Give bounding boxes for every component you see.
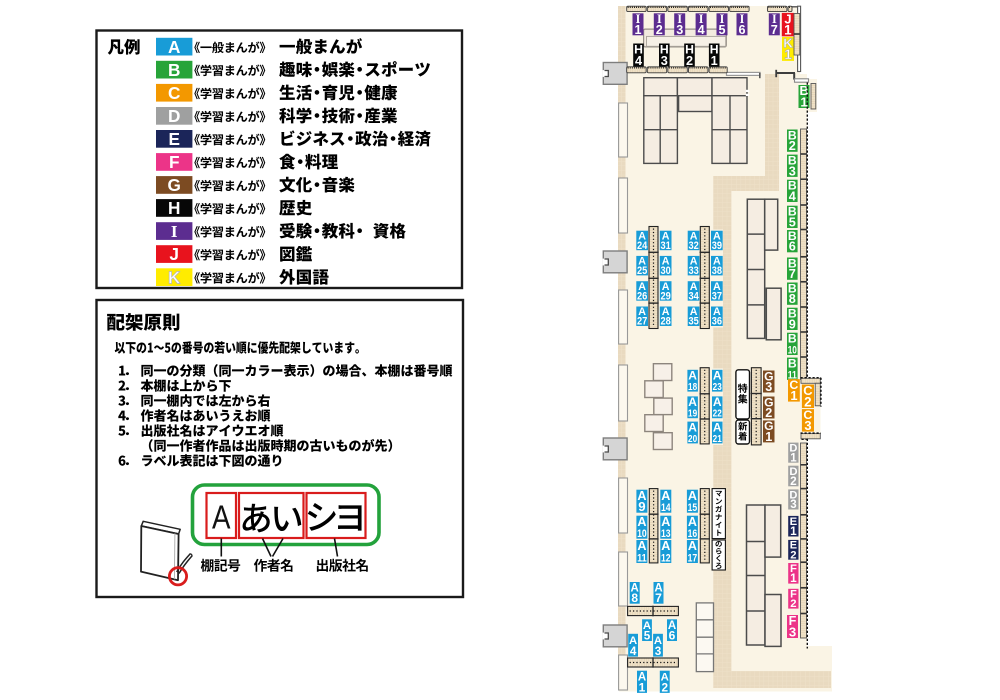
svg-text:27: 27 [637, 316, 647, 328]
svg-text:32: 32 [688, 240, 698, 252]
svg-text:7: 7 [655, 591, 662, 605]
svg-text:J: J [169, 244, 179, 264]
svg-text:19: 19 [688, 408, 697, 420]
svg-text:3: 3 [765, 380, 772, 394]
svg-text:26: 26 [637, 290, 647, 302]
svg-text:1: 1 [711, 54, 718, 68]
svg-text:6: 6 [789, 240, 796, 254]
svg-text:2: 2 [686, 54, 693, 68]
svg-text:9: 9 [789, 317, 796, 331]
svg-text:G: G [168, 175, 181, 195]
svg-text:4: 4 [789, 189, 796, 203]
svg-text:15: 15 [688, 502, 698, 514]
svg-text:3: 3 [655, 645, 662, 658]
svg-text:6: 6 [738, 23, 745, 37]
svg-text:1: 1 [790, 388, 797, 403]
svg-text:F: F [169, 152, 180, 172]
svg-text:3: 3 [804, 418, 811, 433]
svg-text:4: 4 [698, 23, 705, 37]
svg-text:H: H [168, 198, 180, 218]
svg-text:3: 3 [661, 54, 668, 68]
svg-text:2: 2 [662, 680, 669, 694]
svg-text:A: A [688, 489, 697, 503]
svg-text:1: 1 [784, 47, 792, 62]
svg-text:1: 1 [790, 571, 797, 585]
svg-text:6: 6 [669, 629, 676, 643]
svg-text:C: C [168, 83, 180, 103]
svg-text:1: 1 [634, 23, 641, 37]
svg-text:2: 2 [790, 549, 796, 561]
svg-text:18: 18 [688, 381, 697, 393]
svg-text:3: 3 [789, 164, 796, 178]
svg-text:35: 35 [688, 316, 698, 328]
svg-text:1: 1 [800, 94, 807, 109]
svg-text:22: 22 [713, 408, 722, 420]
svg-text:3: 3 [790, 499, 796, 511]
svg-text:2: 2 [789, 139, 796, 153]
svg-text:2: 2 [790, 474, 797, 488]
svg-text:9: 9 [638, 499, 645, 514]
svg-text:2: 2 [656, 23, 663, 37]
svg-text:A: A [661, 539, 670, 553]
svg-text:11: 11 [637, 552, 647, 564]
svg-text:3: 3 [676, 23, 683, 37]
svg-text:A: A [661, 489, 670, 503]
svg-text:7: 7 [771, 23, 778, 37]
svg-text:A: A [688, 515, 697, 529]
svg-text:A: A [212, 499, 231, 536]
svg-text:1: 1 [790, 452, 797, 464]
svg-text:37: 37 [712, 290, 722, 302]
svg-text:D: D [168, 106, 180, 126]
svg-text:5: 5 [644, 630, 651, 643]
svg-text:1: 1 [765, 430, 772, 444]
svg-text:20: 20 [688, 433, 697, 445]
svg-text:38: 38 [712, 265, 722, 277]
svg-text:8: 8 [631, 591, 638, 605]
svg-text:7: 7 [789, 267, 796, 281]
svg-text:1: 1 [639, 680, 646, 694]
svg-text:3: 3 [789, 624, 796, 639]
svg-text:5: 5 [789, 215, 796, 229]
svg-text:A: A [661, 515, 670, 529]
svg-text:I: I [171, 222, 178, 241]
svg-text:A: A [688, 539, 697, 553]
svg-text:8: 8 [789, 292, 796, 306]
svg-text:10: 10 [788, 344, 797, 356]
svg-text:39: 39 [712, 240, 722, 252]
svg-text:28: 28 [660, 316, 670, 328]
svg-text:21: 21 [713, 433, 722, 445]
svg-text:1: 1 [790, 524, 797, 538]
svg-text:24: 24 [637, 240, 647, 252]
svg-text:5: 5 [718, 23, 725, 37]
svg-text:30: 30 [660, 265, 670, 277]
svg-text:31: 31 [660, 240, 670, 252]
svg-text:2: 2 [790, 598, 796, 610]
svg-text:B: B [168, 60, 180, 80]
svg-text:25: 25 [637, 265, 647, 277]
svg-text:29: 29 [660, 290, 670, 302]
svg-text:36: 36 [712, 316, 722, 328]
svg-text:4: 4 [630, 645, 637, 658]
svg-text:A: A [637, 515, 646, 529]
svg-text:K: K [168, 267, 181, 287]
svg-text:12: 12 [661, 552, 671, 564]
svg-text:2: 2 [765, 406, 772, 420]
svg-text:33: 33 [688, 265, 698, 277]
svg-text:A: A [168, 37, 180, 57]
svg-text:34: 34 [688, 290, 698, 302]
svg-text:17: 17 [688, 552, 698, 564]
svg-text:E: E [168, 129, 179, 149]
svg-text:4: 4 [635, 54, 642, 68]
svg-text:14: 14 [661, 502, 671, 514]
svg-text:A: A [637, 539, 646, 553]
svg-text:23: 23 [713, 381, 722, 393]
